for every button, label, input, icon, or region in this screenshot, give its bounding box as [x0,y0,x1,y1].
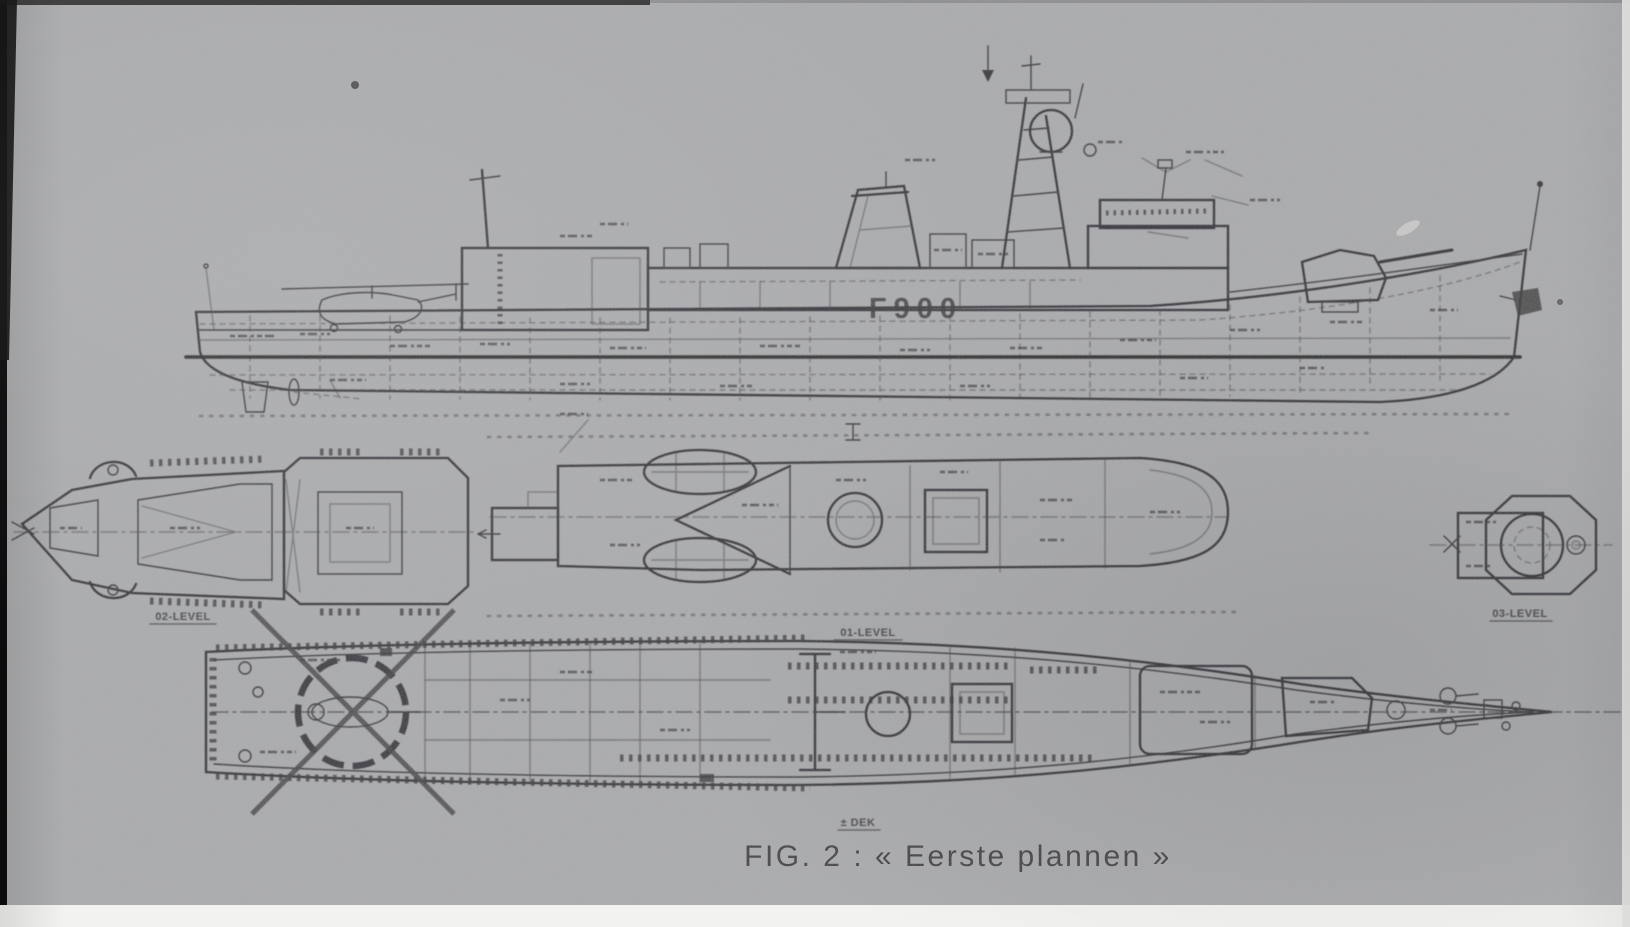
scanned-blueprint-page: F900 02-LEVEL [0,0,1630,927]
paper-grain [0,0,1630,927]
top-edge-line [0,0,650,5]
bottom-margin [0,905,1630,927]
blueprint-scan: F900 02-LEVEL [0,0,1630,927]
top-edge-faint [650,0,1630,3]
right-margin [1622,0,1630,927]
